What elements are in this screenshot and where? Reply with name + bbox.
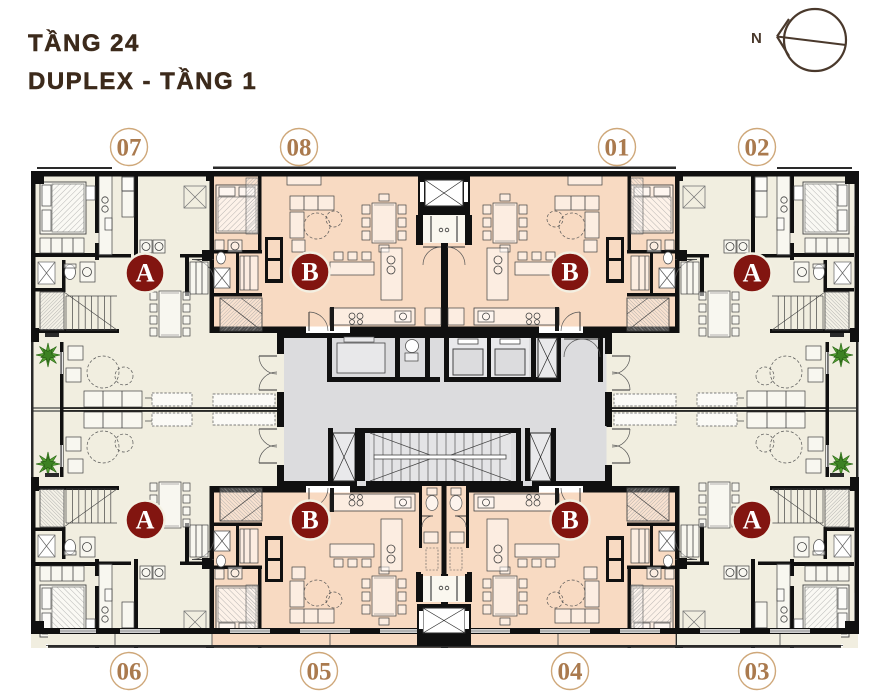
svg-text:03: 03 [745, 659, 770, 686]
svg-text:02: 02 [745, 135, 770, 162]
svg-text:A: A [136, 259, 155, 288]
svg-text:B: B [561, 258, 578, 287]
svg-text:TẦNG 24: TẦNG 24 [28, 29, 140, 57]
svg-text:A: A [136, 506, 155, 535]
svg-text:05: 05 [307, 659, 332, 686]
svg-text:B: B [561, 506, 578, 535]
svg-text:A: A [743, 259, 762, 288]
svg-text:07: 07 [117, 135, 142, 162]
svg-text:A: A [743, 506, 762, 535]
svg-text:DUPLEX - TẦNG 1: DUPLEX - TẦNG 1 [28, 67, 257, 95]
svg-text:01: 01 [605, 135, 630, 162]
svg-text:B: B [301, 506, 318, 535]
svg-text:04: 04 [558, 659, 584, 686]
svg-text:06: 06 [117, 659, 142, 686]
svg-text:N: N [751, 30, 762, 47]
svg-text:08: 08 [287, 135, 312, 162]
svg-text:B: B [301, 258, 318, 287]
